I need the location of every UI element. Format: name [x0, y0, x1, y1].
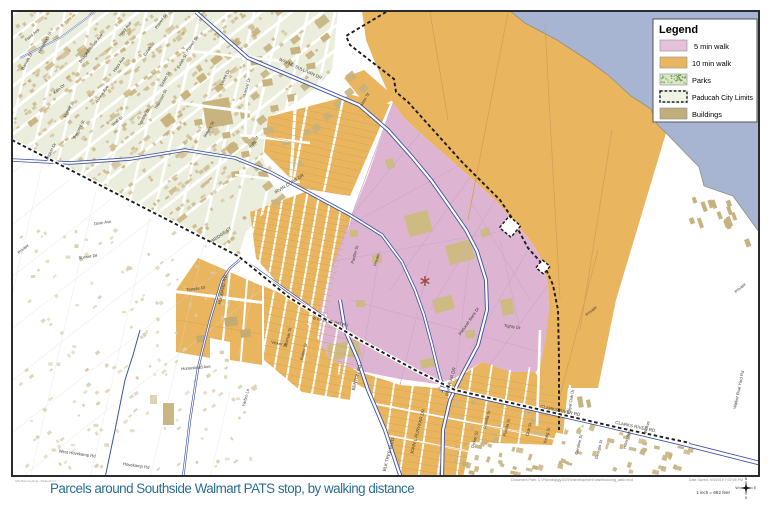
svg-text:Date Saved: 9/3/2019 7:02:05 P: Date Saved: 9/3/2019 7:02:05 PM	[689, 478, 743, 482]
svg-text:Parks: Parks	[692, 76, 711, 85]
svg-text:1 inch = 682 feet: 1 inch = 682 feet	[696, 490, 730, 495]
svg-text:GIS Planning Dept - Paducah KY: GIS Planning Dept - Paducah KY	[15, 479, 56, 483]
svg-text:10 min walk: 10 min walk	[692, 59, 731, 68]
svg-text:Parcels around Southside Walma: Parcels around Southside Walmart PATS st…	[50, 481, 414, 496]
svg-text:Buildings: Buildings	[692, 110, 722, 119]
svg-text:Legend: Legend	[659, 24, 698, 36]
svg-text:Paducah City Limits: Paducah City Limits	[692, 95, 753, 102]
svg-text:Document Path: C:\Planning\gy1: Document Path: C:\Planning\gy102\Redevel…	[511, 478, 633, 482]
svg-text:5 min walk: 5 min walk	[694, 42, 729, 51]
